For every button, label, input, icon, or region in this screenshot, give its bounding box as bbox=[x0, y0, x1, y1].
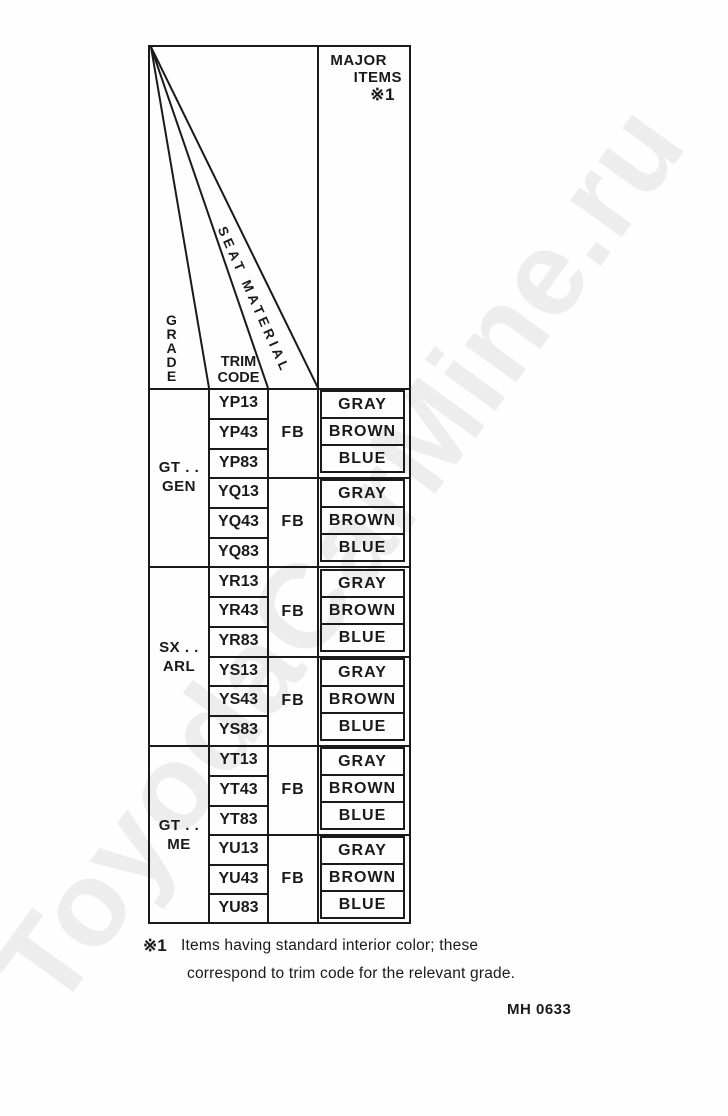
trim-code-line2: CODE bbox=[218, 370, 260, 386]
trim-code-cell: YT83 bbox=[208, 805, 269, 835]
major-items-line2: ITEMS bbox=[318, 69, 402, 86]
column-line-seat-major bbox=[317, 388, 319, 922]
grade-line1: GT . . bbox=[159, 458, 200, 477]
trim-code-cell: YS43 bbox=[208, 685, 269, 715]
grade-cell: GT . . ME bbox=[150, 747, 208, 922]
major-item-cell: BLUE bbox=[320, 533, 405, 562]
seat-material-cell: FB bbox=[269, 834, 317, 923]
major-item-cell: GRAY bbox=[320, 479, 405, 508]
major-item-cell: BLUE bbox=[320, 623, 405, 652]
seat-material-cell: FB bbox=[269, 567, 317, 656]
seat-material-cell: FB bbox=[269, 477, 317, 566]
grade-line1: SX . . bbox=[159, 638, 199, 657]
scanned-catalog-page: ToyodaCarMine.ru MAJOR ITEMS ※1 GRADE TR… bbox=[0, 0, 728, 1116]
trim-code-cell: YS13 bbox=[208, 656, 269, 686]
major-item-cell: BROWN bbox=[320, 596, 405, 625]
seat-material-cell: FB bbox=[269, 745, 317, 834]
trim-code-cell: YQ13 bbox=[208, 477, 269, 507]
footnote-line1: Items having standard interior color; th… bbox=[181, 937, 478, 955]
grade-line2: ME bbox=[167, 835, 191, 854]
footnote-reference-mark: ※1 bbox=[143, 936, 167, 956]
grade-header-label: GRADE bbox=[163, 313, 180, 383]
major-items-header: MAJOR ITEMS ※1 bbox=[318, 52, 409, 103]
trim-code-cell: YT43 bbox=[208, 775, 269, 805]
major-item-cell: GRAY bbox=[320, 569, 405, 598]
major-items-line1: MAJOR bbox=[318, 52, 387, 69]
footnote-line2: correspond to trim code for the relevant… bbox=[187, 965, 515, 983]
trim-code-cell: YT13 bbox=[208, 745, 269, 775]
grade-line2: ARL bbox=[163, 657, 195, 676]
major-item-cell: BLUE bbox=[320, 712, 405, 741]
trim-code-cell: YU13 bbox=[208, 834, 269, 864]
major-item-cell: GRAY bbox=[320, 836, 405, 865]
seat-material-cell: FB bbox=[269, 656, 317, 745]
major-item-cell: BLUE bbox=[320, 444, 405, 473]
trim-code-cell: YR83 bbox=[208, 626, 269, 656]
trim-code-cell: YP43 bbox=[208, 418, 269, 448]
major-item-cell: BROWN bbox=[320, 685, 405, 714]
major-item-cell: GRAY bbox=[320, 390, 405, 419]
trim-code-cell: YU43 bbox=[208, 864, 269, 894]
trim-code-cell: YS83 bbox=[208, 715, 269, 745]
trim-code-line1: TRIM bbox=[221, 354, 256, 370]
major-item-cell: BLUE bbox=[320, 801, 405, 830]
major-items-note-ref: ※1 bbox=[318, 86, 395, 103]
grade-cell: SX . . ARL bbox=[150, 568, 208, 745]
seat-material-cell: FB bbox=[269, 388, 317, 477]
trim-code-cell: YP13 bbox=[208, 388, 269, 418]
major-item-cell: GRAY bbox=[320, 747, 405, 776]
major-item-cell: GRAY bbox=[320, 658, 405, 687]
major-item-cell: BROWN bbox=[320, 774, 405, 803]
grade-line2: GEN bbox=[162, 477, 196, 496]
trim-code-cell: YR43 bbox=[208, 596, 269, 626]
major-item-cell: BROWN bbox=[320, 417, 405, 446]
grade-line1: GT . . bbox=[159, 816, 200, 835]
trim-code-table: MAJOR ITEMS ※1 GRADE TRIM CODE SEAT MATE… bbox=[148, 45, 411, 924]
major-item-cell: BLUE bbox=[320, 890, 405, 919]
major-item-cell: BROWN bbox=[320, 863, 405, 892]
grade-cell: GT . . GEN bbox=[150, 388, 208, 566]
trim-code-cell: YQ83 bbox=[208, 537, 269, 567]
trim-code-cell: YR13 bbox=[208, 567, 269, 597]
document-reference-number: MH 0633 bbox=[507, 1001, 571, 1018]
trim-code-header-label: TRIM CODE bbox=[209, 354, 268, 386]
diagonal-line-grade-trim bbox=[151, 47, 209, 388]
major-item-cell: BROWN bbox=[320, 506, 405, 535]
trim-code-cell: YP83 bbox=[208, 448, 269, 478]
trim-code-cell: YU83 bbox=[208, 893, 269, 923]
trim-code-cell: YQ43 bbox=[208, 507, 269, 537]
